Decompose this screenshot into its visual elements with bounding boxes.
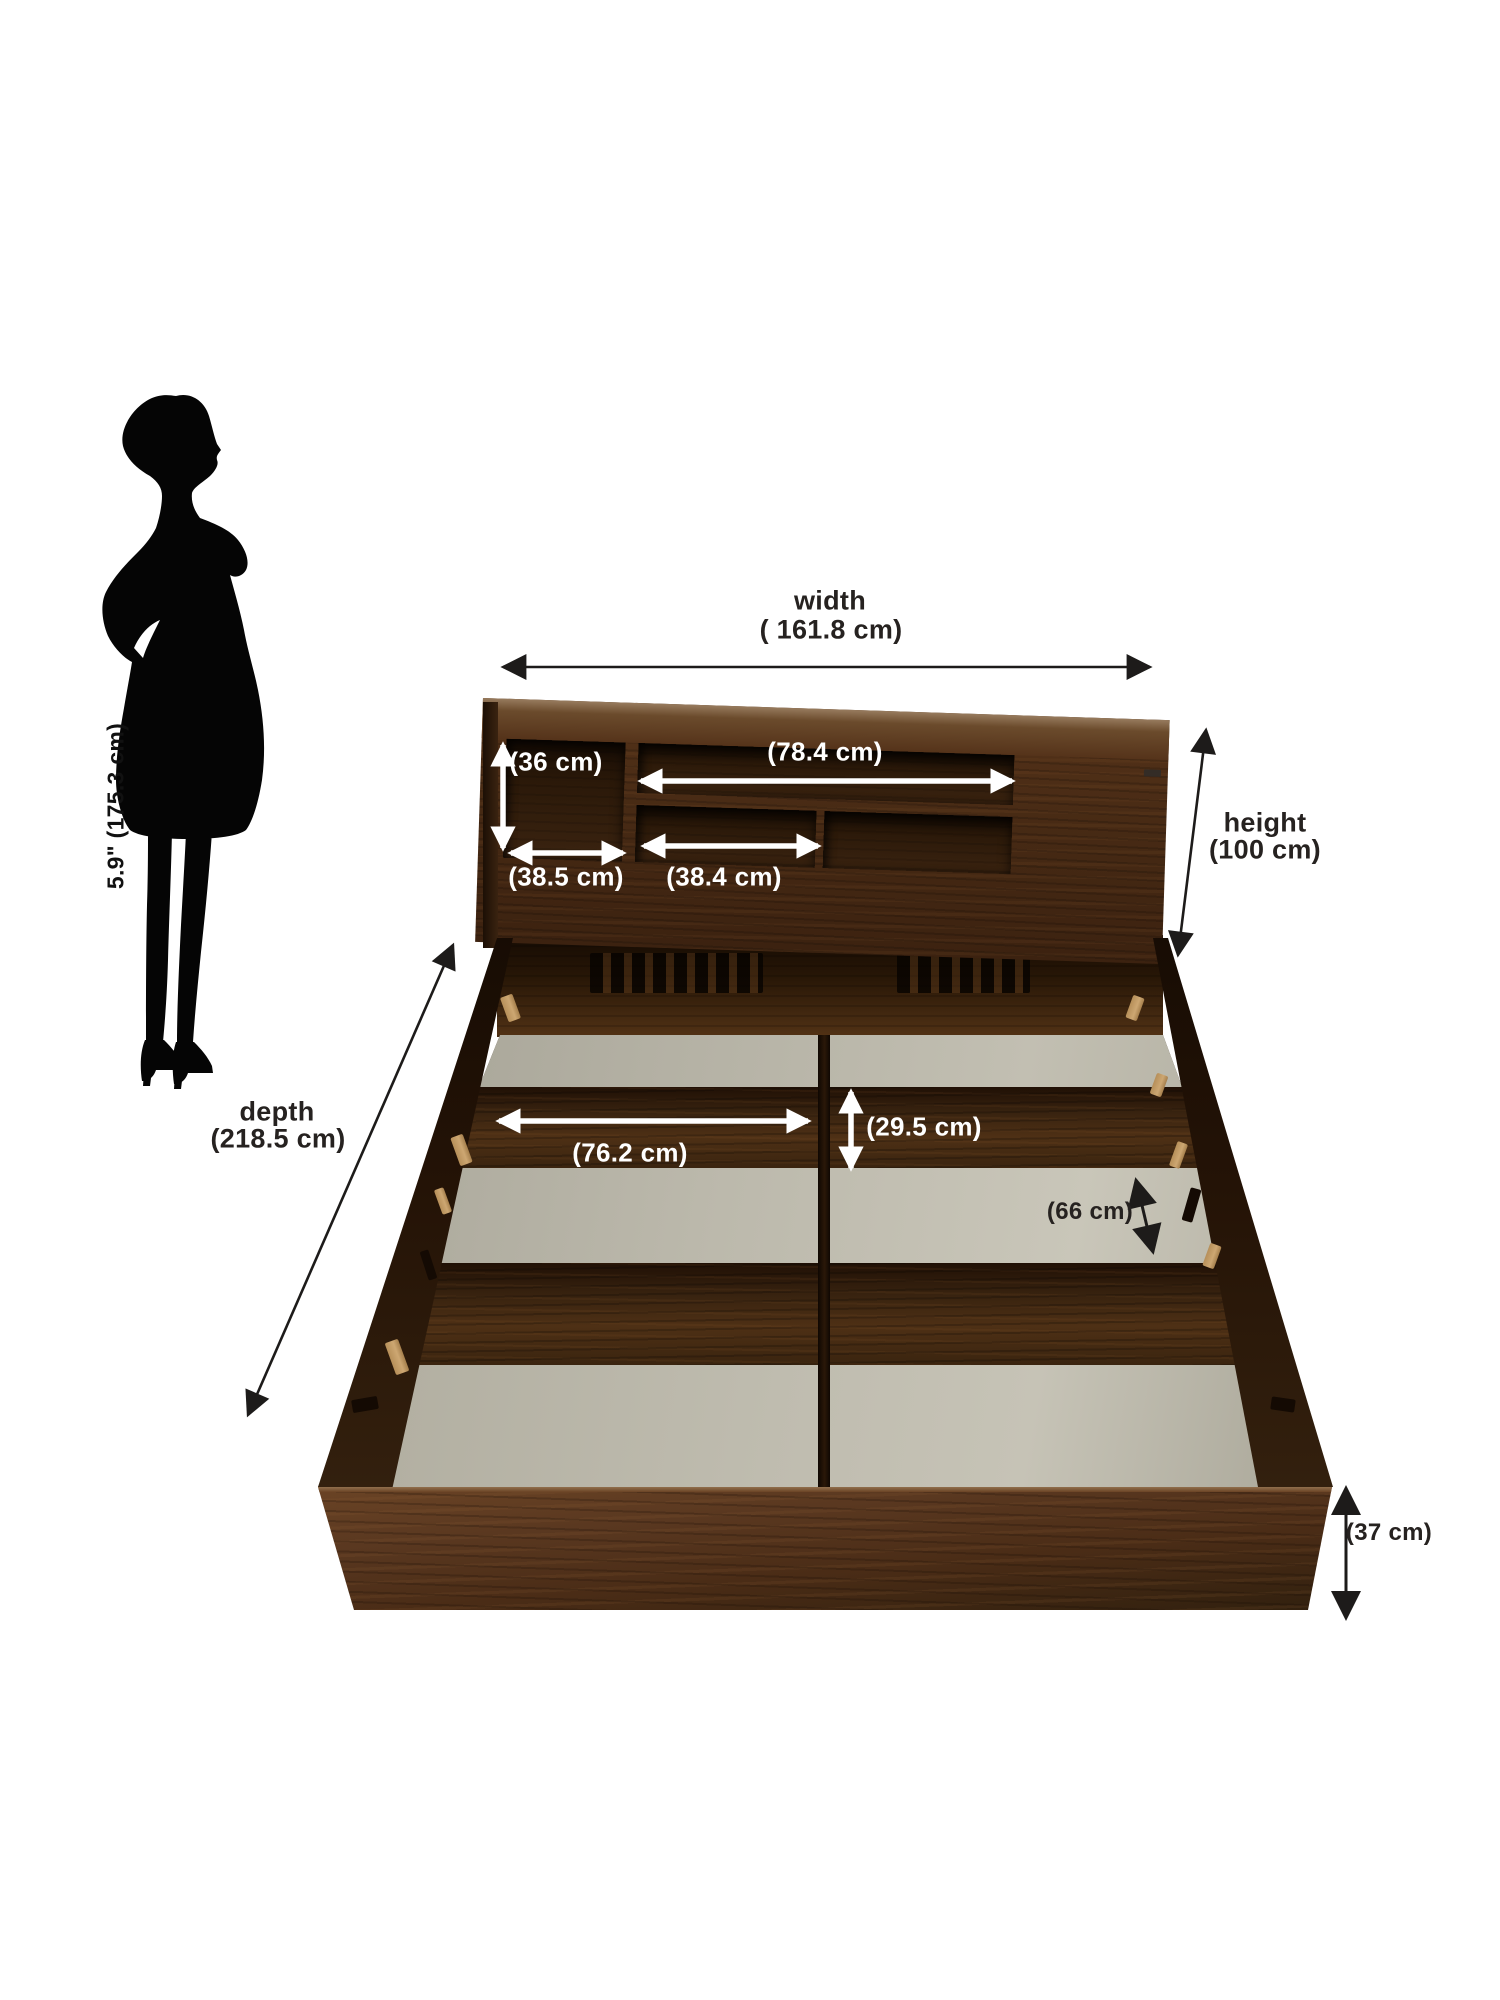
middle-shelf-width-value: (38.4 cm) [666,862,781,893]
shelf-height-value: (36 cm) [509,747,602,778]
dimension-arrows [0,0,1500,2000]
width-title: width [794,586,866,617]
compartment-depth-value: (66 cm) [1047,1198,1133,1226]
height-value: (100 cm) [1209,835,1321,866]
base-height-value: (37 cm) [1346,1519,1432,1547]
compartment-depth-arrow [1136,1180,1153,1252]
product-dimension-diagram: 5.9" (175.3 cm) [0,0,1500,2000]
depth-value: (218.5 cm) [210,1124,345,1155]
compartment-width-value: (76.2 cm) [572,1138,687,1169]
top-shelf-width-value: (78.4 cm) [767,737,882,768]
beam-width-value: (29.5 cm) [866,1112,981,1143]
height-arrow [1178,730,1206,955]
width-value: ( 161.8 cm) [760,615,903,646]
left-shelf-width-value: (38.5 cm) [508,862,623,893]
depth-arrow [248,945,453,1415]
